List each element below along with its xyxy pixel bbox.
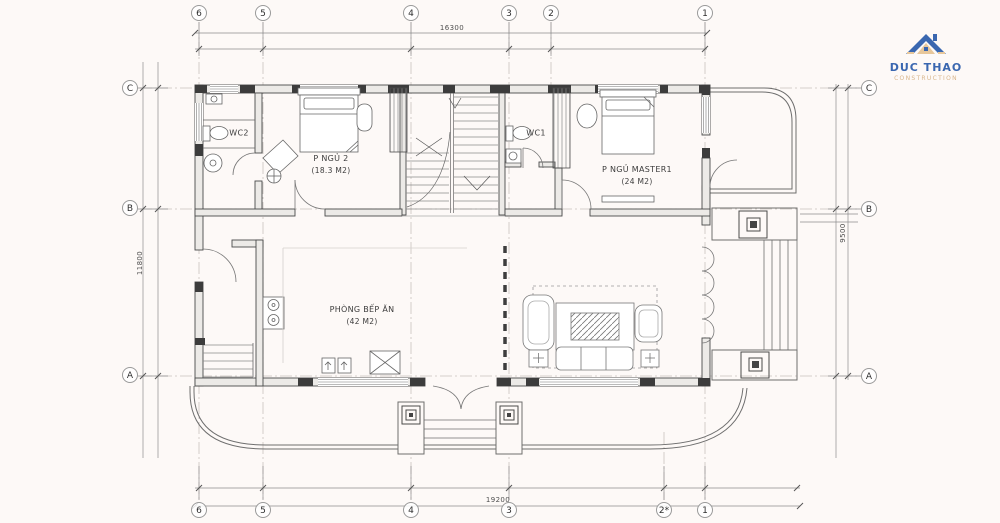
terrace-right <box>712 208 797 380</box>
floor-unit-right <box>338 358 351 373</box>
master-bench <box>602 196 654 202</box>
dim-bottom: 19200 <box>486 496 510 504</box>
grid-bubble-bottom-5: 5 <box>255 502 271 518</box>
living-room-set <box>523 286 662 370</box>
wc1-sink <box>506 149 521 163</box>
wc1-toilet-tank <box>506 126 513 141</box>
wc2-sink <box>206 94 222 104</box>
floor-unit-left <box>322 358 335 373</box>
grid-bubble-right-A: A <box>861 368 877 384</box>
stove <box>263 297 284 329</box>
floor-plan-drawing <box>0 0 1000 523</box>
bed2-pillow <box>304 98 354 109</box>
room-label-master: P NGỦ MASTER1 (24 M2) <box>602 164 672 188</box>
stair-arrow-down <box>464 176 490 190</box>
wc2-washer <box>204 154 222 172</box>
room-label-bedroom2: P NGỦ 2 (18.3 M2) <box>312 153 351 177</box>
entrance-steps <box>424 420 496 438</box>
grid-bubble-top-3: 3 <box>501 5 517 21</box>
bed2-headboard <box>298 88 360 95</box>
grid-bubble-bottom-2: 2* <box>656 502 672 518</box>
dim-right: 9500 <box>839 223 847 242</box>
room-label-wc2: WC2 <box>229 129 249 138</box>
room-name: P NGỦ MASTER1 <box>602 164 672 176</box>
folding-door-2 <box>702 271 714 295</box>
staircase <box>402 93 505 216</box>
grid-bubble-left-C: C <box>122 80 138 96</box>
grid-bubble-top-4: 4 <box>403 5 419 21</box>
entrance-door-right <box>461 386 489 409</box>
terrace-column-top <box>750 221 757 228</box>
bed2-desk <box>263 140 298 174</box>
grid-bubble-top-2: 2 <box>543 5 559 21</box>
wc2-toilet <box>210 127 228 140</box>
master-headboard <box>600 90 656 97</box>
master-pillow <box>606 100 650 110</box>
room-area: (24 M2) <box>602 176 672 188</box>
side-stairs <box>195 338 253 377</box>
floor-plan-sheet: 6 5 4 3 2 1 6 5 4 3 2* 1 C B A C B A 163… <box>0 0 1000 523</box>
dim-left: 11800 <box>136 251 144 275</box>
grid-bubble-top-5: 5 <box>255 5 271 21</box>
door-wc2 <box>233 153 255 175</box>
logo-subtitle: CONSTRUCTION <box>880 75 972 82</box>
room-area: (42 M2) <box>330 316 395 328</box>
room-name: PHÒNG BẾP ĂN <box>330 304 395 316</box>
door-bedroom2 <box>295 180 325 209</box>
grid-bubble-bottom-1: 1 <box>697 502 713 518</box>
folding-door-3 <box>702 295 714 319</box>
entrance-column-right <box>507 413 511 417</box>
dim-top: 16300 <box>440 24 464 32</box>
door-kitchen-side <box>203 249 236 282</box>
grid-bubble-bottom-6: 6 <box>191 502 207 518</box>
grid-bubble-top-6: 6 <box>191 5 207 21</box>
grid-bubble-right-B: B <box>861 201 877 217</box>
door-master-balcony <box>710 160 737 187</box>
room-label-kitchen: PHÒNG BẾP ĂN (42 M2) <box>330 304 395 328</box>
grid-bubble-right-C: C <box>861 80 877 96</box>
house-roof-icon <box>904 30 948 56</box>
folding-door-1 <box>702 247 714 271</box>
terrace-steps <box>764 240 797 350</box>
grid-bubble-bottom-3: 3 <box>501 502 517 518</box>
logo: DUC THAO CONSTRUCTION <box>880 30 972 82</box>
porch-outline <box>190 386 747 449</box>
grid-bubble-bottom-4: 4 <box>403 502 419 518</box>
master-chair <box>577 104 597 128</box>
wc2-toilet-tank <box>203 126 210 141</box>
grid-bubble-top-1: 1 <box>697 5 713 21</box>
bed2-chair <box>357 104 372 131</box>
terrace-column-bottom <box>752 361 759 368</box>
balcony-top-right <box>702 88 796 199</box>
room-area: (18.3 M2) <box>312 165 351 177</box>
door-master <box>562 180 591 209</box>
entrance-column-left <box>409 413 413 417</box>
logo-title: DUC THAO <box>880 61 972 74</box>
entrance-door-left <box>433 386 461 409</box>
sofa <box>556 347 633 370</box>
room-label-wc1: WC1 <box>526 129 546 138</box>
grid-bubble-left-A: A <box>122 367 138 383</box>
entrance <box>398 402 522 454</box>
room-name: P NGỦ 2 <box>312 153 351 165</box>
grid-bubble-left-B: B <box>122 200 138 216</box>
